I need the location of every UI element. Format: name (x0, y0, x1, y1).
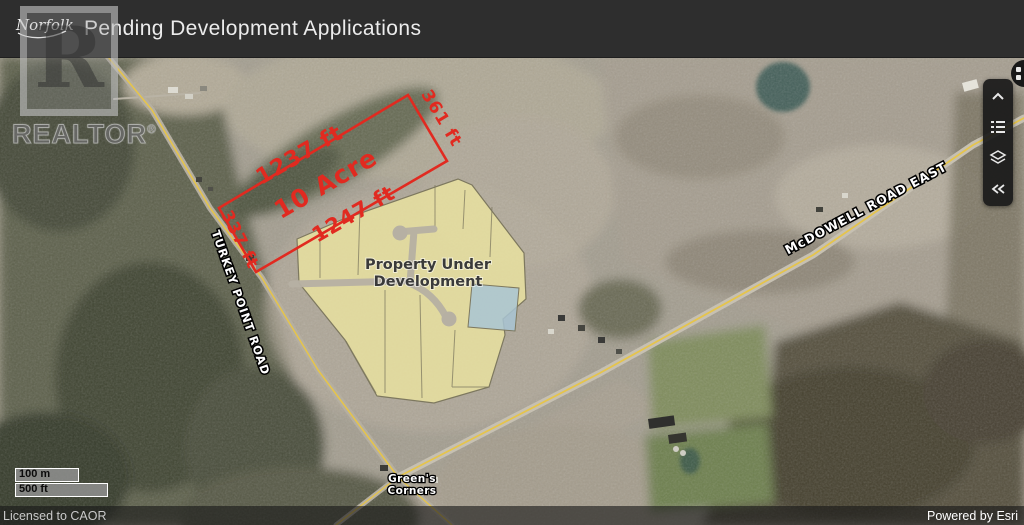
expand-up-button[interactable] (983, 86, 1013, 106)
map-tools-panel (983, 79, 1013, 206)
app-header: Norfolk Pending Development Applications (0, 0, 1024, 58)
scale-bar-metric: 100 m (15, 468, 79, 482)
map-canvas: Property Under Development 1237 ft 10 Ac… (0, 57, 1024, 525)
grid-dots-icon (1016, 67, 1024, 80)
scale-bar-imperial: 500 ft (15, 483, 108, 497)
norfolk-county-logo: Norfolk (16, 18, 70, 40)
development-pond (468, 284, 519, 331)
powered-by-text: Powered by Esri (927, 509, 1018, 523)
place-label-line2: Corners (388, 485, 437, 497)
license-text: Licensed to CAOR (3, 509, 107, 523)
map-viewport[interactable]: Property Under Development 1237 ft 10 Ac… (0, 57, 1024, 525)
development-label-line2: Development (374, 274, 483, 290)
collapse-panel-button[interactable] (983, 179, 1013, 199)
development-label-line1: Property Under (365, 257, 492, 273)
double-chevron-left-icon (990, 183, 1006, 195)
page-title: Pending Development Applications (84, 17, 421, 41)
scale-bar: 100 m 500 ft (15, 468, 108, 498)
chevron-up-icon (990, 91, 1006, 101)
legend-icon (990, 120, 1006, 134)
legend-button[interactable] (983, 117, 1013, 137)
layers-button[interactable] (983, 148, 1013, 168)
layers-icon (989, 150, 1007, 166)
norfolk-logo-text: Norfolk (16, 18, 70, 32)
attribution-bar: Licensed to CAOR Powered by Esri (0, 506, 1024, 525)
place-label-line1: Green's (388, 473, 436, 485)
